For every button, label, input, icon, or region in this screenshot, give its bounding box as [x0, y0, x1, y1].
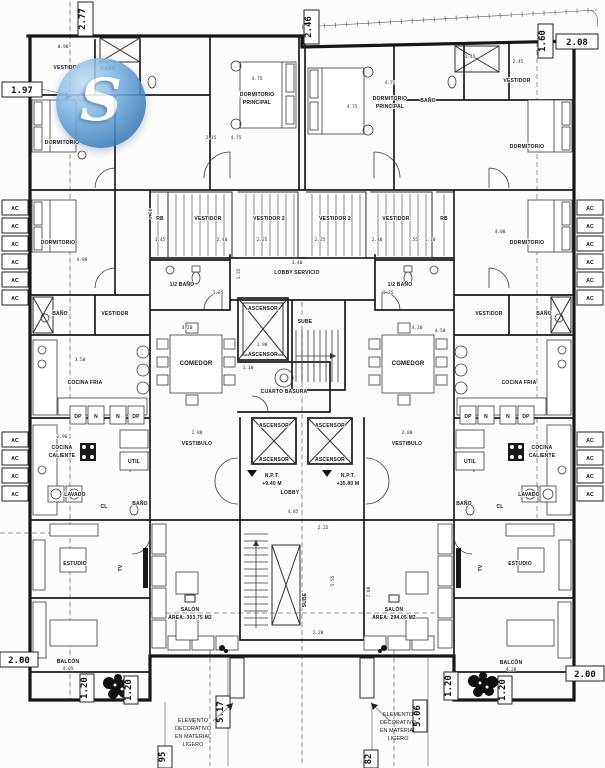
- dim-text: 2.25: [257, 237, 268, 243]
- dim-text: 5.55: [330, 575, 336, 586]
- dim-text: 1.35: [236, 268, 242, 279]
- dim-text: 2.80: [192, 430, 203, 436]
- dim-text: 2.25: [318, 525, 329, 531]
- room-label-vestidor-2: VESTIDOR 2: [253, 216, 285, 222]
- room-label-cocina-fria: COCINA FRIA: [502, 380, 537, 386]
- room-tag-box: [185, 595, 195, 602]
- dim-text: 2.90: [57, 434, 68, 440]
- npt-value-left: +9.40 M: [262, 481, 282, 487]
- dim-text: 0.90: [58, 44, 69, 50]
- dim-text: 1.45: [465, 54, 476, 60]
- dim-box-160: 1.60: [538, 30, 548, 52]
- room-label-bano: BAÑO: [52, 310, 68, 317]
- room-label-cl: CL: [100, 504, 107, 510]
- room-label-util: UTIL: [464, 459, 476, 465]
- room-label-sube: SUBE: [298, 319, 313, 325]
- level-marker-icon: [247, 470, 257, 477]
- room-area-salon-right: ÁREA: 294.05 M2: [372, 614, 416, 621]
- ac-label: AC: [11, 224, 19, 230]
- room-label-ascensor: ASCENSOR: [248, 306, 278, 312]
- room-label-ascensor: ASCENSOR: [259, 457, 289, 463]
- dim-text: 2.40: [372, 237, 383, 243]
- room-label-bano: BAÑO: [536, 310, 552, 317]
- appliance-label-dp: DP: [464, 414, 472, 420]
- room-label-vestibulo: VESTIBULO: [392, 441, 422, 447]
- appliance-label-n: N: [506, 414, 510, 420]
- room-label-rb: RB: [156, 216, 164, 222]
- room-label-vestidor-2: VESTIDOR 2: [319, 216, 351, 222]
- ac-label: AC: [11, 474, 19, 480]
- room-label-balcon: BALCÓN: [57, 657, 80, 665]
- appliance-label-n: N: [94, 414, 98, 420]
- room-label-estudio: ESTUDIO: [508, 561, 532, 567]
- room-label-cuarto-basura: CUARTO BASURA: [261, 389, 308, 395]
- room-label-dormitorio-principal: DORMITORIO: [240, 92, 274, 98]
- ac-label: AC: [11, 438, 19, 444]
- room-label-bano: BAÑO: [420, 97, 436, 104]
- room-label-salon: SALÓN: [181, 605, 200, 613]
- dim-box-277: 2.77: [78, 8, 88, 30]
- dim-text: 1.90: [257, 342, 268, 348]
- watermark-letter: S: [80, 66, 122, 134]
- dim-text: 4.75: [252, 76, 263, 82]
- dim-text: 1.10: [243, 365, 254, 371]
- ac-label: AC: [11, 242, 19, 248]
- ac-label: AC: [586, 492, 594, 498]
- ac-label: AC: [586, 456, 594, 462]
- dim-box-120: 1.20: [444, 675, 454, 697]
- room-tag-box: [389, 595, 399, 602]
- room-area-salon-left: ÁREA: 303.75 M2: [168, 614, 212, 621]
- room-label-comedor: COMEDOR: [392, 361, 425, 367]
- ac-label: AC: [586, 206, 594, 212]
- room-label-comedor: COMEDOR: [180, 361, 213, 367]
- level-marker-icon: [322, 470, 332, 477]
- room-label-dormitorio-principal: PRINCIPAL: [376, 104, 404, 110]
- dim-box-200-right: 2.00: [574, 670, 596, 680]
- annotation-decorative: DECORATIVO: [175, 726, 212, 732]
- dim-text: 4.20: [148, 208, 154, 219]
- annotation-decorative: ELEMENTO: [178, 718, 209, 724]
- dim-text: 4.20: [412, 325, 423, 331]
- dim-box-95: 95: [158, 752, 168, 763]
- ac-label: AC: [586, 224, 594, 230]
- dim-text: 4.80: [77, 257, 88, 263]
- room-label-dormitorio: DORMITORIO: [510, 144, 544, 150]
- dim-text: 4.05: [63, 666, 74, 672]
- room-label-dormitorio-principal: DORMITORIO: [373, 96, 407, 102]
- annotation-decorative: LIGERO: [183, 742, 205, 748]
- dim-text: 2.45: [513, 59, 524, 65]
- ac-label: AC: [11, 456, 19, 462]
- ac-label: AC: [11, 206, 19, 212]
- ac-label: AC: [11, 260, 19, 266]
- room-label-lavado: LAVADO: [64, 492, 86, 498]
- ac-label: AC: [11, 296, 19, 302]
- room-label-cocina-fria: COCINA FRIA: [68, 380, 103, 386]
- room-label-cocina-caliente: COCINA: [52, 445, 73, 451]
- dim-text: 3.40: [292, 260, 303, 266]
- room-label-rb: RB: [440, 216, 448, 222]
- dim-text: 1.10: [425, 237, 436, 243]
- room-label-cocina-caliente: COCINA: [532, 445, 553, 451]
- room-label-cocina-caliente: CALIENTE: [529, 453, 556, 459]
- npt-label: N.P.T.: [265, 473, 280, 479]
- dim-text: .55: [410, 237, 418, 243]
- ac-label: AC: [586, 474, 594, 480]
- dim-box-82: 82: [364, 754, 374, 765]
- room-label-tv: TV: [118, 564, 124, 571]
- dim-box-246: 2.46: [304, 16, 314, 38]
- appliance-label-dp: DP: [522, 414, 530, 420]
- room-label-ascensor: ASCENSOR: [315, 423, 345, 429]
- room-label-dormitorio: DORMITORIO: [41, 240, 75, 246]
- dim-text: 4.75: [347, 104, 358, 110]
- annotation-decorative: LIGERO: [388, 736, 410, 742]
- dim-text: 4.75: [385, 80, 396, 86]
- room-label-vestidor: VESTIDOR: [503, 78, 530, 84]
- room-label-vestidor: VESTIDOR: [382, 216, 409, 222]
- room-label-cocina-caliente: CALIENTE: [49, 453, 76, 459]
- appliance-label-n: N: [484, 414, 488, 420]
- dim-box-517: 5.17: [216, 701, 226, 723]
- room-label-lobby: LOBBY: [281, 490, 300, 496]
- dim-text: 1.25: [383, 290, 394, 296]
- room-label-util: UTIL: [128, 459, 140, 465]
- dim-text: 4.50: [435, 328, 446, 334]
- ac-label: AC: [586, 296, 594, 302]
- ac-label: AC: [11, 278, 19, 284]
- annotation-decorative: EN MATERIAL: [175, 734, 211, 740]
- npt-label: N.P.T.: [341, 473, 356, 479]
- room-label-estudio: ESTUDIO: [63, 561, 87, 567]
- npt-value-right: +35.80 M: [337, 481, 360, 487]
- room-label-balcon: BALCÓN: [500, 658, 523, 666]
- room-label-vestidor: VESTIDOR: [475, 311, 502, 317]
- room-label-medio-bano: 1/2 BAÑO: [388, 281, 413, 288]
- room-label-lavado: LAVADO: [518, 492, 540, 498]
- dim-box-120: 1.20: [498, 679, 508, 701]
- room-label-vestidor: VESTIDOR: [194, 216, 221, 222]
- dim-box-208: 2.08: [566, 38, 588, 48]
- dim-text: 4.20: [182, 325, 193, 331]
- ac-label: AC: [586, 242, 594, 248]
- ac-label: AC: [586, 260, 594, 266]
- dim-text: 1.25: [213, 290, 224, 296]
- room-label-dormitorio-principal: PRINCIPAL: [243, 100, 271, 106]
- annotation-decorative: EN MATERIAL: [380, 728, 416, 734]
- dim-text: 2.15: [206, 135, 217, 141]
- appliance-label-n: N: [116, 414, 120, 420]
- annotation-decorative: DECORATIVO: [380, 720, 417, 726]
- annotation-decorative: ELEMENTO: [383, 712, 414, 718]
- room-label-ascensor: ASCENSOR: [248, 352, 278, 358]
- dim-text: 2.80: [402, 430, 413, 436]
- dim-text: 4.28: [506, 667, 517, 673]
- watermark-logo: S: [56, 58, 146, 148]
- room-label-vestibulo: VESTIBULO: [182, 441, 212, 447]
- dim-box-197: 1.97: [11, 86, 33, 96]
- room-label-ascensor: ASCENSOR: [315, 457, 345, 463]
- dim-text: 2.25: [315, 237, 326, 243]
- dim-text: 1.45: [155, 237, 166, 243]
- room-label-ascensor: ASCENSOR: [259, 423, 289, 429]
- dim-text: 4.75: [231, 135, 242, 141]
- dim-text: 3.50: [75, 357, 86, 363]
- dim-box-200-left: 2.00: [8, 656, 30, 666]
- ac-label: AC: [586, 278, 594, 284]
- room-label-medio-bano: 1/2 BAÑO: [170, 281, 195, 288]
- elevator-core: [238, 298, 352, 464]
- stairs-lower: [244, 534, 300, 628]
- appliance-label-dp: DP: [132, 414, 140, 420]
- stairs-upper: [296, 330, 338, 382]
- room-label-dormitorio: DORMITORIO: [45, 140, 79, 146]
- room-label-lobby-servicio: LOBBY SERVICIO: [274, 270, 319, 276]
- dim-text: 4.00: [495, 229, 506, 235]
- dim-text: 2.40: [217, 237, 228, 243]
- tree-icon: [103, 645, 498, 699]
- room-label-vestidor: VESTIDOR: [101, 311, 128, 317]
- room-label-bano: BAÑO: [456, 500, 472, 507]
- room-label-dormitorio: DORMITORIO: [510, 240, 544, 246]
- room-label-tv: TV: [478, 564, 484, 571]
- dim-box-120: 1.20: [124, 679, 134, 701]
- room-label-sube: SUBE: [302, 592, 308, 607]
- floor-plan-page: ACACACACACAC ACACACAC ACACACACACAC ACACA…: [0, 0, 605, 768]
- room-label-salon: SALÓN: [385, 605, 404, 613]
- ac-label: AC: [586, 438, 594, 444]
- ac-label: AC: [11, 492, 19, 498]
- dim-text: 4.85: [288, 509, 299, 515]
- room-label-cl: CL: [496, 504, 503, 510]
- dim-text: 7.08: [366, 586, 372, 597]
- dim-text: 2.20: [313, 630, 324, 636]
- room-label-bano: BAÑO: [132, 500, 148, 507]
- dim-box-120: 1.20: [80, 677, 90, 699]
- appliance-label-dp: DP: [74, 414, 82, 420]
